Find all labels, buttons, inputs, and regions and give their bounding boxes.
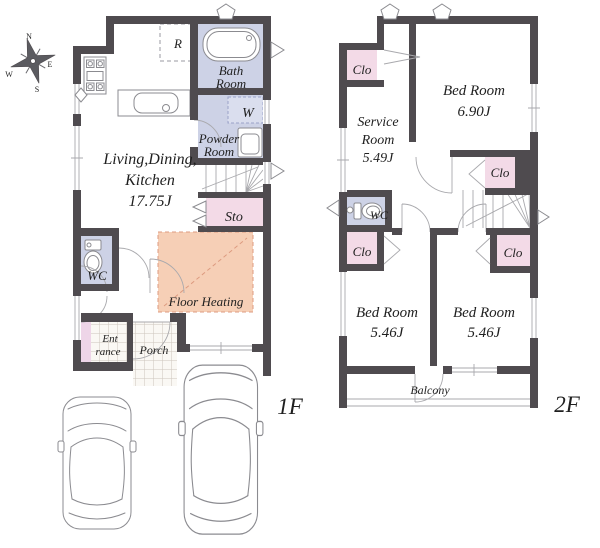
closet-label-nw: Clo <box>353 62 372 77</box>
balcony-edge <box>347 399 530 406</box>
window <box>73 296 81 340</box>
wall <box>490 228 538 235</box>
wall <box>127 322 133 362</box>
wall <box>112 228 119 286</box>
wall <box>339 264 384 271</box>
entrance-label-2: rance <box>95 346 120 358</box>
floor-2-label: 2F <box>554 392 581 417</box>
storage-label: Sto <box>225 210 243 225</box>
service-room-size: 5.49J <box>363 151 395 166</box>
window-arrow-icon <box>538 210 549 224</box>
closet-door-icon <box>476 238 490 264</box>
wall <box>81 284 119 291</box>
window <box>190 342 252 354</box>
stairs-2f <box>463 190 530 228</box>
floor-plan: N E S W <box>0 0 600 548</box>
wall <box>490 266 538 273</box>
wall <box>339 366 415 374</box>
storage-door-arrow <box>193 201 206 213</box>
car-small <box>58 397 136 529</box>
window-arrow-icon <box>327 200 339 216</box>
wall <box>377 16 538 24</box>
wall <box>409 16 416 142</box>
wall <box>430 235 437 366</box>
floor-1-plan: R Bath Room W Powder Room Living,Dining,… <box>58 4 304 534</box>
vent-icon <box>381 4 399 19</box>
window-arrow-icon <box>271 163 284 179</box>
closet-label-east: Clo <box>491 165 510 180</box>
wall <box>497 366 538 374</box>
entrance-label-1: Ent <box>101 333 118 345</box>
storage-door-arrow <box>193 215 206 227</box>
closet-door-icon <box>469 160 485 188</box>
wall <box>198 226 271 232</box>
bedroom-sw-door-arc <box>402 204 430 232</box>
wall <box>198 192 271 198</box>
window <box>530 298 538 338</box>
bedroom-se-size: 5.46J <box>468 325 502 341</box>
floor-2-plan: Clo Bed Room 6.90J Service Room 5.49J Cl… <box>327 4 581 417</box>
compass-icon: N E S W <box>5 32 61 94</box>
wall <box>392 228 402 235</box>
window-arrow-icon <box>271 42 284 58</box>
washer-label: W <box>242 106 255 121</box>
powder-sink-icon <box>238 128 262 157</box>
wall <box>339 80 384 87</box>
wc-label-1f: WC <box>87 268 107 283</box>
bathtub-icon <box>203 28 260 61</box>
wall <box>486 228 490 235</box>
bedroom-main-size: 6.90J <box>458 104 492 120</box>
window <box>263 100 271 124</box>
window <box>337 128 349 192</box>
wall <box>430 228 458 235</box>
ldk-size-label: 17.75J <box>128 193 172 210</box>
wc-door-arc <box>119 248 149 278</box>
bedroom-sw-label: Bed Room <box>356 305 418 321</box>
balcony-label: Balcony <box>410 383 450 397</box>
vent-icon <box>433 4 451 19</box>
window <box>339 272 347 336</box>
wall <box>73 362 133 371</box>
stairs-1f <box>202 165 263 192</box>
floor-plan-svg: N E S W <box>0 0 600 548</box>
porch-label: Porch <box>139 343 169 357</box>
refrigerator-label: R <box>173 36 182 51</box>
wall <box>81 313 133 322</box>
shoe-cabinet-area <box>81 322 91 362</box>
powder-room-label-2: Room <box>203 144 234 159</box>
window <box>452 364 497 376</box>
bedroom-main-door-arc <box>416 157 452 193</box>
kitchen-sink-icon <box>118 90 190 116</box>
wall <box>190 95 198 120</box>
wall <box>339 366 347 408</box>
window <box>71 126 83 190</box>
kitchen-stove-icon <box>84 57 106 94</box>
bath-room-label-2: Room <box>215 76 246 91</box>
service-room-label-1: Service <box>357 115 398 130</box>
window <box>263 162 271 184</box>
service-room-label-2: Room <box>361 133 395 148</box>
wall <box>530 16 538 408</box>
closet-label-se: Clo <box>504 245 523 260</box>
compass-n-label: N <box>26 32 32 41</box>
compass-s-label: S <box>35 85 39 94</box>
ldk-label-2: Kitchen <box>124 172 175 189</box>
wc-label-2f: WC <box>370 208 389 222</box>
wall <box>190 158 271 165</box>
closet-label-west: Clo <box>353 244 372 259</box>
wall <box>339 225 385 232</box>
wall <box>190 16 198 95</box>
bedroom-sw-size: 5.46J <box>371 325 405 341</box>
ldk-label-1: Living,Dining, <box>102 151 196 168</box>
window <box>528 84 540 132</box>
car-large <box>179 365 263 534</box>
vent-icon <box>217 4 235 19</box>
compass-e-label: E <box>48 60 53 69</box>
wall <box>485 188 538 195</box>
floor-heating-label: Floor Heating <box>168 294 244 309</box>
bedroom-main-label: Bed Room <box>443 83 505 99</box>
floor-1-label: 1F <box>277 394 304 419</box>
closet-door-icon <box>384 236 400 264</box>
compass-w-label: W <box>5 70 13 79</box>
wall <box>443 366 452 374</box>
bedroom-se-label: Bed Room <box>453 305 515 321</box>
wall <box>106 16 271 24</box>
